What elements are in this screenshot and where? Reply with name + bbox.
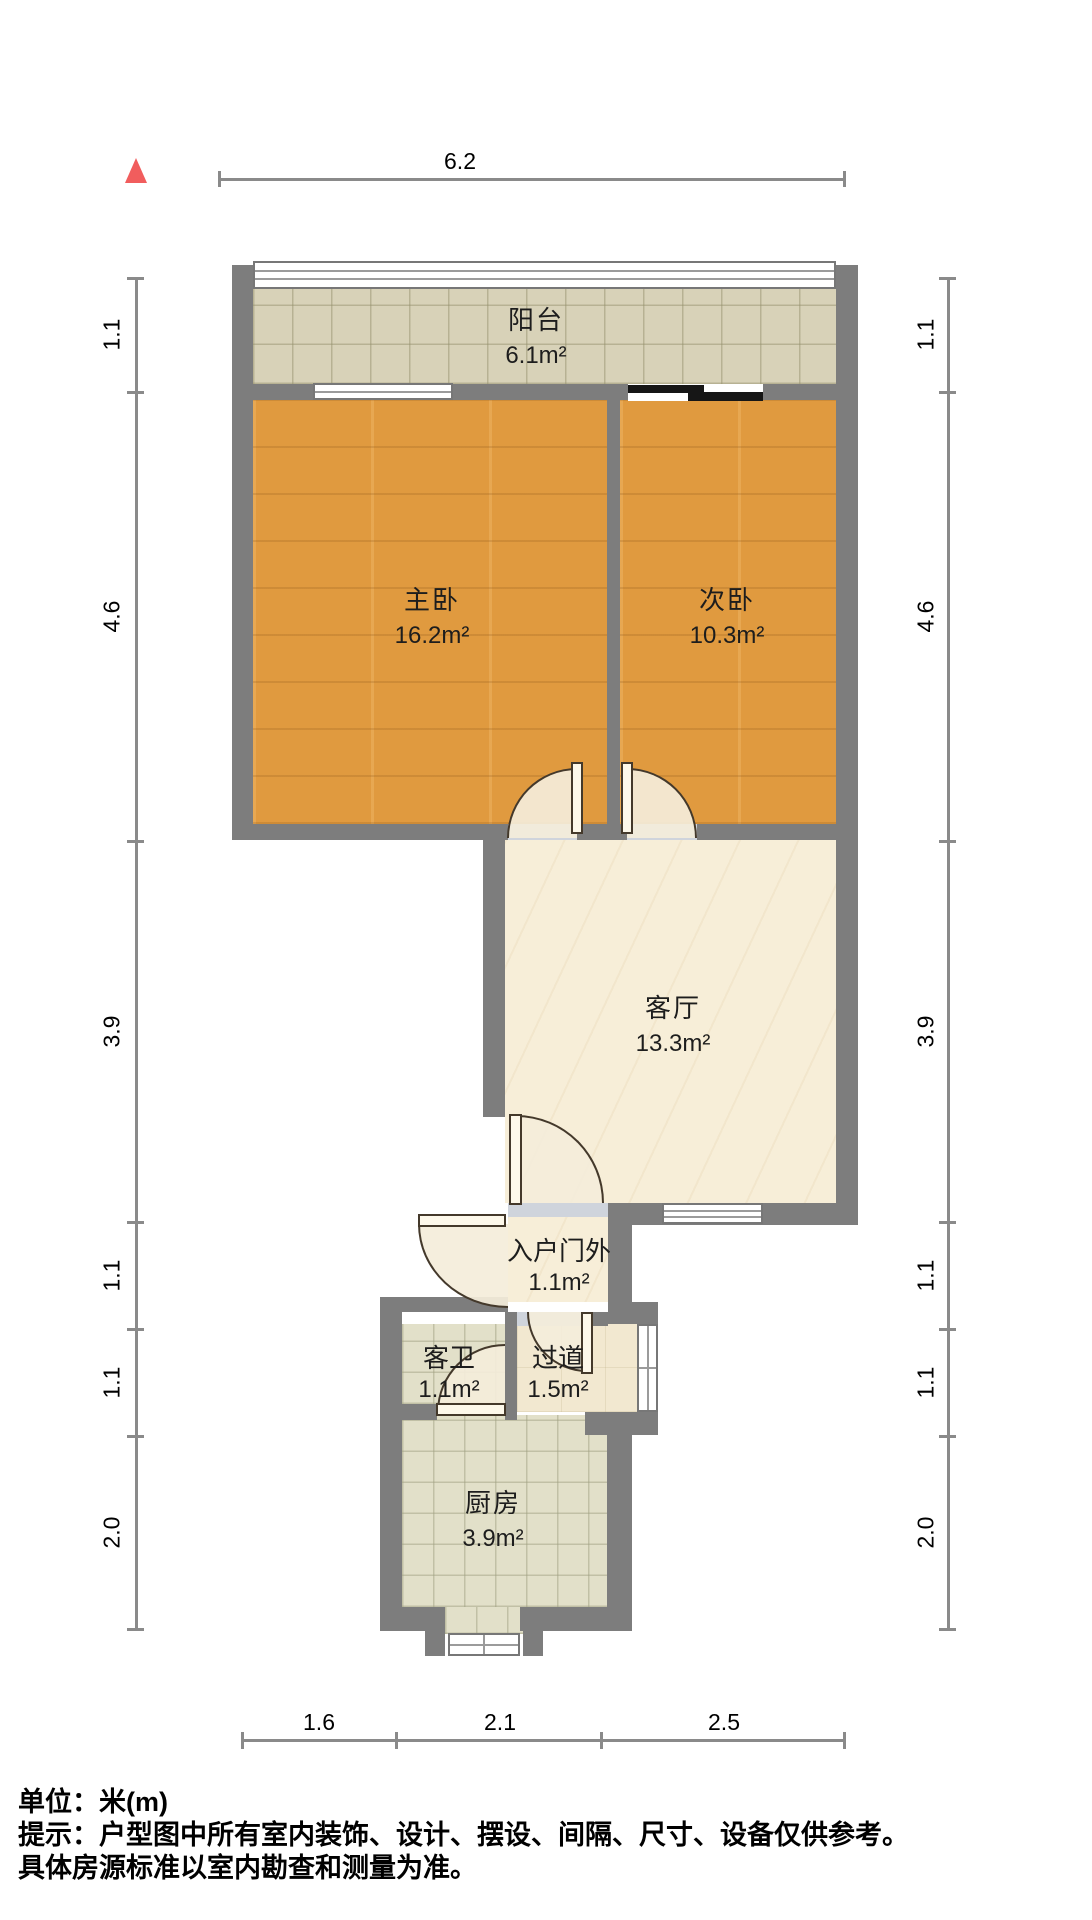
dimension-tick [600,1732,603,1749]
wall [380,1607,445,1631]
room-area: 1.1m² [418,1376,479,1404]
dimension-line-right [947,277,950,1631]
room-area: 16.2m² [395,622,470,650]
wall [232,265,253,840]
dimension-value: 3.9 [913,1009,940,1055]
window-line [664,1210,761,1212]
dimension-value: 1.1 [913,312,940,358]
dimension-tick [127,840,144,843]
wall [453,384,630,400]
footer-disclaimer-2: 具体房源标准以室内勘查和测量为准。 [18,1846,477,1885]
landing-door [418,1214,506,1227]
room-label-balcony: 阳台 6.1m² [505,300,566,370]
corridor-window [637,1324,658,1412]
master-bedroom-window [313,383,453,400]
dimension-tick [127,391,144,394]
wall-kitchen-right [607,1435,632,1631]
window-line [255,278,834,280]
dimension-value: 1.1 [99,1360,126,1406]
entry-door [509,1114,522,1205]
room-name: 次卧 [690,580,765,617]
dimension-tick [218,171,221,187]
dimension-line-left [135,277,138,1631]
window-line [483,1635,485,1654]
dimension-value: 3.9 [99,1009,126,1055]
kitchen-bay-window [448,1633,520,1656]
wall [608,1302,658,1324]
room-label-master-bedroom: 主卧 16.2m² [395,580,470,650]
room-area: 13.3m² [636,1030,711,1058]
master-bedroom-door [571,762,583,834]
window-line [639,1367,656,1369]
dimension-line-bottom [241,1739,846,1742]
wall [380,1297,402,1631]
sliding-door-panel [688,392,763,401]
dimension-tick [127,1628,144,1631]
room-area: 3.9m² [462,1525,523,1553]
dimension-tick [127,1435,144,1438]
dimension-tick [127,277,144,280]
dimension-tick [939,1628,956,1631]
wall [585,1412,658,1435]
dimension-value: 1.1 [913,1253,940,1299]
room-name: 客厅 [636,988,711,1025]
dimension-value: 1.6 [303,1709,335,1736]
wall [505,1312,517,1420]
second-bedroom-door [621,762,633,834]
dimension-tick [843,171,846,187]
room-name: 厨房 [462,1483,523,1520]
dimension-value: 2.1 [484,1709,516,1736]
dimension-line-top [218,178,846,181]
room-area: 10.3m² [690,622,765,650]
room-name: 过道 [527,1338,588,1375]
dimension-value: 1.1 [913,1360,940,1406]
window-line [315,391,451,393]
wall [253,384,313,400]
wall [523,1631,543,1656]
room-label-second-bedroom: 次卧 10.3m² [690,580,765,650]
room-label-bathroom: 客卫 1.1m² [418,1338,479,1404]
room-name: 阳台 [505,300,566,337]
room-name: 入户门外 [507,1231,611,1268]
threshold [508,1203,608,1217]
wall-bedroom-divider [607,400,620,824]
wall [483,840,505,1117]
window-line [255,270,834,272]
wall [836,265,858,1225]
dimension-value: 4.6 [913,594,940,640]
bathroom-door [436,1403,506,1416]
dimension-value: 1.1 [99,312,126,358]
balcony-window [253,261,836,289]
dimension-tick [395,1732,398,1749]
room-label-corridor: 过道 1.5m² [527,1338,588,1404]
room-name: 主卧 [395,580,470,617]
wall [425,1631,445,1656]
room-area: 1.5m² [527,1376,588,1404]
dimension-tick [939,840,956,843]
dimension-tick [939,277,956,280]
room-label-entry-landing: 入户门外 1.1m² [507,1231,611,1297]
room-area: 6.1m² [505,342,566,370]
floor-kitchen-bay [445,1607,523,1634]
dimension-value: 4.6 [99,594,126,640]
wall [763,384,836,400]
dimension-tick [939,1435,956,1438]
wall [608,1225,632,1312]
dimension-tick [939,1328,956,1331]
dimension-tick [843,1732,846,1749]
dimension-tick [939,391,956,394]
room-label-kitchen: 厨房 3.9m² [462,1483,523,1553]
dimension-tick [127,1328,144,1331]
room-name: 客卫 [418,1338,479,1375]
landing-door-swing [418,1224,508,1308]
dimension-value: 1.1 [99,1253,126,1299]
dimension-value: 6.2 [444,148,476,175]
north-arrow-icon [125,158,147,183]
dimension-tick [127,1221,144,1224]
floor-plan-page: 阳台 6.1m² 主卧 16.2m² 次卧 10.3m² 客厅 13.3m² 入… [0,0,1092,1920]
living-room-window [662,1203,763,1224]
dimension-tick [939,1221,956,1224]
room-label-living-room: 客厅 13.3m² [636,988,711,1058]
dimension-value: 2.5 [708,1709,740,1736]
dimension-value: 2.0 [99,1510,126,1556]
wall [402,1404,437,1420]
wall [593,1312,608,1326]
window-line [664,1216,761,1218]
wall [520,1607,607,1631]
dimension-tick [241,1732,244,1749]
dimension-value: 2.0 [913,1510,940,1556]
room-area: 1.1m² [507,1269,611,1297]
